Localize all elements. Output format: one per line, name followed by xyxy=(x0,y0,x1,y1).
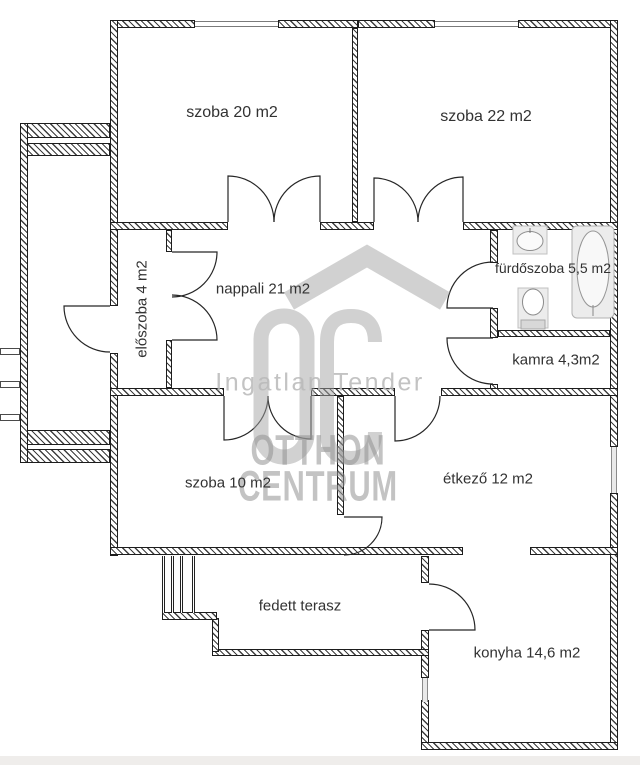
logo-letter-o xyxy=(261,316,307,457)
room-label-furdoszoba: fürdőszoba 5,5 m2 xyxy=(495,260,611,276)
floor-plan: Ingatlan Tender OTTHON CENTRUM szoba 20 … xyxy=(0,0,640,765)
door-etkezo xyxy=(395,396,440,441)
door-szoba20-right xyxy=(274,176,320,222)
room-label-eloszoba: előszoba 4 m2 xyxy=(134,260,151,358)
room-label-konyha: konyha 14,6 m2 xyxy=(474,645,581,662)
room-label-terasz: fedett terasz xyxy=(259,598,342,615)
room-label-kamra: kamra 4,3m2 xyxy=(512,352,600,369)
door-kamra xyxy=(447,338,493,384)
room-label-nappali: nappali 21 m2 xyxy=(216,281,310,298)
door-konyha xyxy=(429,584,475,630)
bottom-edge-strip xyxy=(0,756,640,765)
door-furdoszoba xyxy=(447,262,493,308)
toilet-icon xyxy=(518,288,548,329)
room-label-etkezo: étkező 12 m2 xyxy=(443,471,533,488)
room-label-szoba20: szoba 20 m2 xyxy=(186,104,278,122)
bathroom-fixtures xyxy=(513,226,614,329)
door-szoba22-left xyxy=(374,178,418,222)
room-label-szoba22: szoba 22 m2 xyxy=(440,108,532,126)
sink-icon xyxy=(513,226,547,254)
door-szoba22-right xyxy=(418,177,463,222)
door-eloszoba-lower xyxy=(172,295,217,340)
door-szoba10-etkezo xyxy=(344,517,382,555)
logo-letter-c xyxy=(327,316,375,458)
door-arcs xyxy=(64,176,493,630)
door-szoba20-left xyxy=(228,176,274,222)
logo-roof-chevron xyxy=(289,256,445,301)
door-entrance xyxy=(64,306,110,352)
door-eloszoba-upper xyxy=(172,252,217,297)
room-label-szoba10: szoba 10 m2 xyxy=(185,475,271,492)
